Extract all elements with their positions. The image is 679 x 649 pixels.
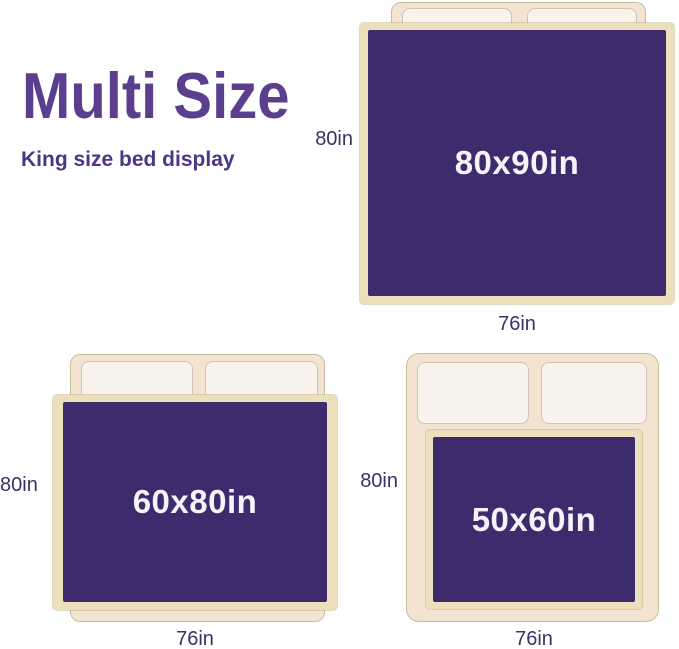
height-dimension-label: 80in: [0, 473, 46, 497]
width-dimension-label: 76in: [53, 627, 337, 649]
blanket-80x90: 80x90in: [360, 23, 674, 304]
blanket-size-label: 50x60in: [472, 501, 597, 539]
width-dimension-label: 76in: [426, 627, 642, 649]
height-dimension-label: 80in: [350, 469, 398, 493]
blanket-face: 50x60in: [433, 437, 635, 602]
blanket-60x80: 60x80in: [53, 395, 337, 610]
blanket-face: 60x80in: [63, 402, 327, 602]
pillow-left: [417, 362, 529, 424]
pillow-right: [541, 362, 647, 424]
height-dimension-label: 80in: [293, 127, 353, 151]
blanket-size-label: 80x90in: [455, 144, 580, 182]
page-subtitle: King size bed display: [21, 148, 235, 172]
blanket-50x60: 50x60in: [426, 430, 642, 609]
width-dimension-label: 76in: [360, 312, 674, 336]
blanket-face: 80x90in: [368, 30, 666, 296]
blanket-size-label: 60x80in: [133, 483, 258, 521]
page-title: Multi Size: [22, 64, 289, 129]
multi-size-infographic: Multi Size King size bed display 80x90in…: [0, 0, 679, 649]
